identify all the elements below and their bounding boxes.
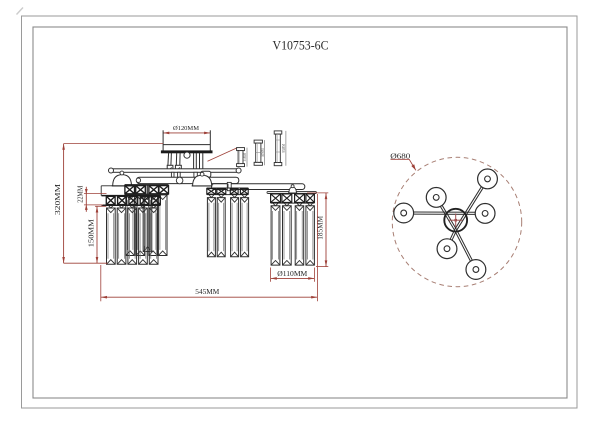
svg-text:22MM: 22MM xyxy=(77,185,85,203)
svg-text:V10753-6C: V10753-6C xyxy=(273,39,329,53)
svg-text:Ø110MM: Ø110MM xyxy=(277,270,308,278)
svg-text:Ø120MM: Ø120MM xyxy=(173,125,199,132)
svg-text:320MM: 320MM xyxy=(54,183,62,215)
svg-text:545MM: 545MM xyxy=(195,288,220,296)
svg-text:50MM: 50MM xyxy=(260,148,265,157)
svg-text:185MM: 185MM xyxy=(317,215,325,240)
svg-text:35MM: 35MM xyxy=(242,153,247,162)
svg-text:95MM: 95MM xyxy=(281,144,286,153)
svg-text:150MM: 150MM xyxy=(87,218,95,247)
